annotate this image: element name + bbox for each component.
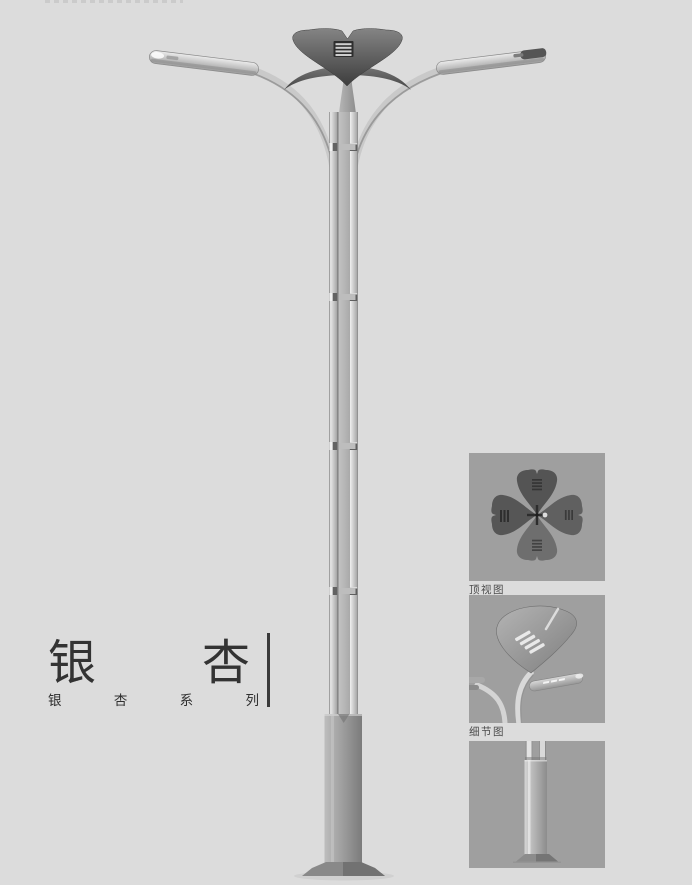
- title-char-1: 银: [48, 640, 96, 688]
- series-label: 银 杏 系 列: [48, 691, 259, 706]
- base-view-caption: [469, 871, 605, 884]
- pole-base-image: [469, 741, 605, 868]
- left-lamp-head: [149, 50, 260, 76]
- detail-view-caption: 细节图: [469, 726, 605, 739]
- title-char-2: 杏: [202, 640, 250, 688]
- detail-view-figure: 细节图: [469, 595, 605, 739]
- lamp-head-detail-image: [469, 595, 605, 723]
- pole: [329, 112, 358, 716]
- base-column: [525, 757, 548, 855]
- top-view-figure: 顶视图: [469, 453, 605, 597]
- right-lamp-head: [435, 48, 547, 75]
- lamp-top-view-image: [469, 453, 605, 581]
- title-divider: [267, 633, 270, 707]
- base-view-figure: [469, 741, 605, 884]
- product-title: 银 杏: [48, 640, 250, 690]
- pole-base: [294, 714, 394, 881]
